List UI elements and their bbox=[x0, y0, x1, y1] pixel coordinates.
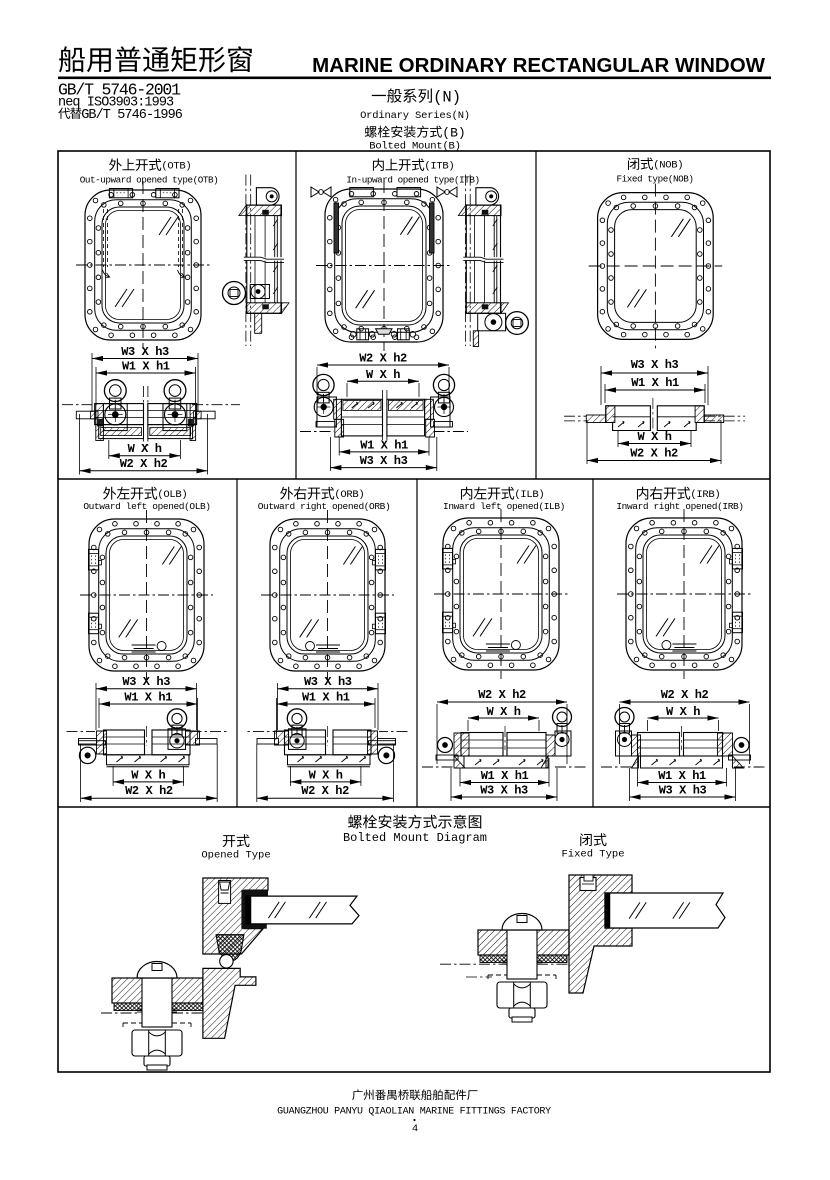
svg-text:W X h: W X h bbox=[309, 769, 343, 783]
svg-text:(NOB): (NOB) bbox=[653, 160, 683, 172]
svg-text:(ITB): (ITB) bbox=[424, 161, 454, 173]
svg-text:In-upward opened type(ITB): In-upward opened type(ITB) bbox=[346, 174, 479, 185]
svg-text:W X h: W X h bbox=[666, 705, 700, 719]
svg-text:W3 X h3: W3 X h3 bbox=[360, 454, 408, 468]
svg-text:W3 X h3: W3 X h3 bbox=[631, 358, 679, 372]
svg-text:(OLB): (OLB) bbox=[157, 489, 187, 501]
svg-text:W2 X h2: W2 X h2 bbox=[661, 688, 709, 702]
svg-text:MARINE ORDINARY RECTANGULAR WI: MARINE ORDINARY RECTANGULAR WINDOW bbox=[312, 54, 766, 77]
svg-text:4: 4 bbox=[412, 1123, 418, 1135]
svg-text:W3 X h3: W3 X h3 bbox=[304, 675, 352, 689]
svg-text:W2 X h2: W2 X h2 bbox=[630, 447, 678, 461]
svg-text:W1 X h1: W1 X h1 bbox=[360, 439, 408, 453]
svg-text:GB/T 5746-1996: GB/T 5746-1996 bbox=[81, 108, 183, 123]
svg-text:W3 X h3: W3 X h3 bbox=[480, 784, 528, 798]
svg-text:W X h: W X h bbox=[486, 705, 520, 719]
svg-text:W1 X h1: W1 X h1 bbox=[658, 769, 706, 783]
svg-text:GUANGZHOU PANYU QIAOLIAN MARIN: GUANGZHOU PANYU QIAOLIAN MARINE FITTINGS… bbox=[277, 1107, 551, 1118]
svg-text:W2 X h2: W2 X h2 bbox=[125, 784, 173, 798]
svg-text:Opened Type: Opened Type bbox=[201, 850, 270, 862]
svg-text:W X h: W X h bbox=[637, 430, 671, 444]
svg-text:Ordinary Series(N): Ordinary Series(N) bbox=[360, 110, 470, 122]
svg-text:W2 X h2: W2 X h2 bbox=[120, 457, 168, 471]
svg-text:(B): (B) bbox=[442, 126, 465, 141]
svg-text:W X h: W X h bbox=[131, 769, 165, 783]
svg-text:Bolted Mount Diagram: Bolted Mount Diagram bbox=[343, 831, 487, 845]
svg-text:W1 X h1: W1 X h1 bbox=[302, 691, 350, 705]
svg-text:W2 X h2: W2 X h2 bbox=[478, 688, 526, 702]
svg-text:W3 X h3: W3 X h3 bbox=[659, 784, 707, 798]
svg-text:Fixed Type: Fixed Type bbox=[561, 849, 624, 861]
svg-text:(N): (N) bbox=[433, 88, 461, 106]
svg-text:W3 X h3: W3 X h3 bbox=[122, 675, 170, 689]
svg-text:(ORB): (ORB) bbox=[334, 489, 364, 501]
svg-text:W1 X h1: W1 X h1 bbox=[122, 360, 170, 374]
svg-text:W1 X h1: W1 X h1 bbox=[481, 769, 529, 783]
svg-text:W X h: W X h bbox=[128, 442, 162, 456]
svg-text:Out-upward opened type(OTB): Out-upward opened type(OTB) bbox=[80, 174, 218, 185]
svg-text:Outward right opened(ORB): Outward right opened(ORB) bbox=[258, 501, 391, 512]
svg-text:Fixed type(NOB): Fixed type(NOB) bbox=[617, 173, 694, 184]
svg-text:W2 X h2: W2 X h2 bbox=[359, 352, 407, 366]
svg-text:W X h: W X h bbox=[366, 368, 400, 382]
svg-text:(ILB): (ILB) bbox=[514, 489, 544, 501]
svg-text:W3 X h3: W3 X h3 bbox=[121, 345, 169, 359]
svg-text:(IRB): (IRB) bbox=[690, 489, 720, 501]
svg-text:W1 X h1: W1 X h1 bbox=[124, 691, 172, 705]
svg-text:W1 X h1: W1 X h1 bbox=[631, 376, 679, 390]
svg-text:Outward left opened(OLB): Outward left opened(OLB) bbox=[83, 501, 210, 512]
svg-text:W2 X h2: W2 X h2 bbox=[301, 784, 349, 798]
svg-text:Inward right opened(IRB): Inward right opened(IRB) bbox=[616, 501, 743, 512]
svg-text:Inward left opened(ILB): Inward left opened(ILB) bbox=[443, 501, 565, 512]
svg-text:(OTB): (OTB) bbox=[161, 161, 191, 173]
